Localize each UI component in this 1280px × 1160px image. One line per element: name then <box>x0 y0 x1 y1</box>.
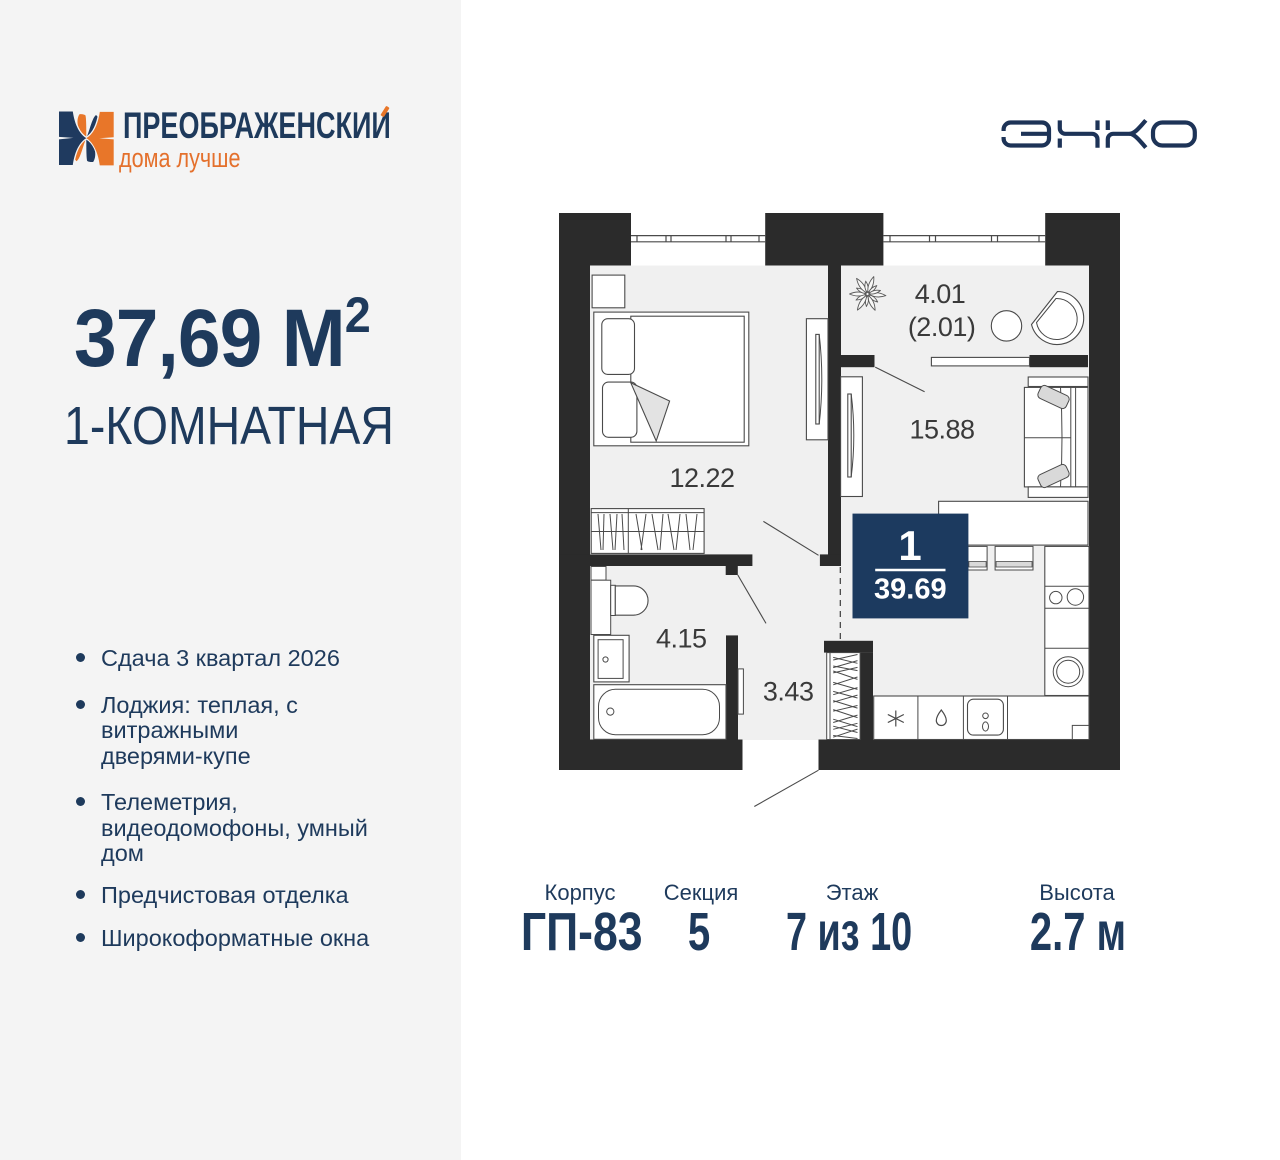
svg-text:4.15: 4.15 <box>656 623 707 653</box>
svg-text:15.88: 15.88 <box>909 415 974 445</box>
svg-text:12.22: 12.22 <box>669 463 734 493</box>
svg-text:39.69: 39.69 <box>874 574 947 606</box>
svg-text:1: 1 <box>898 522 921 569</box>
svg-text:3.43: 3.43 <box>763 677 814 707</box>
svg-text:4.01: 4.01 <box>915 279 966 309</box>
svg-text:(2.01): (2.01) <box>908 312 976 342</box>
